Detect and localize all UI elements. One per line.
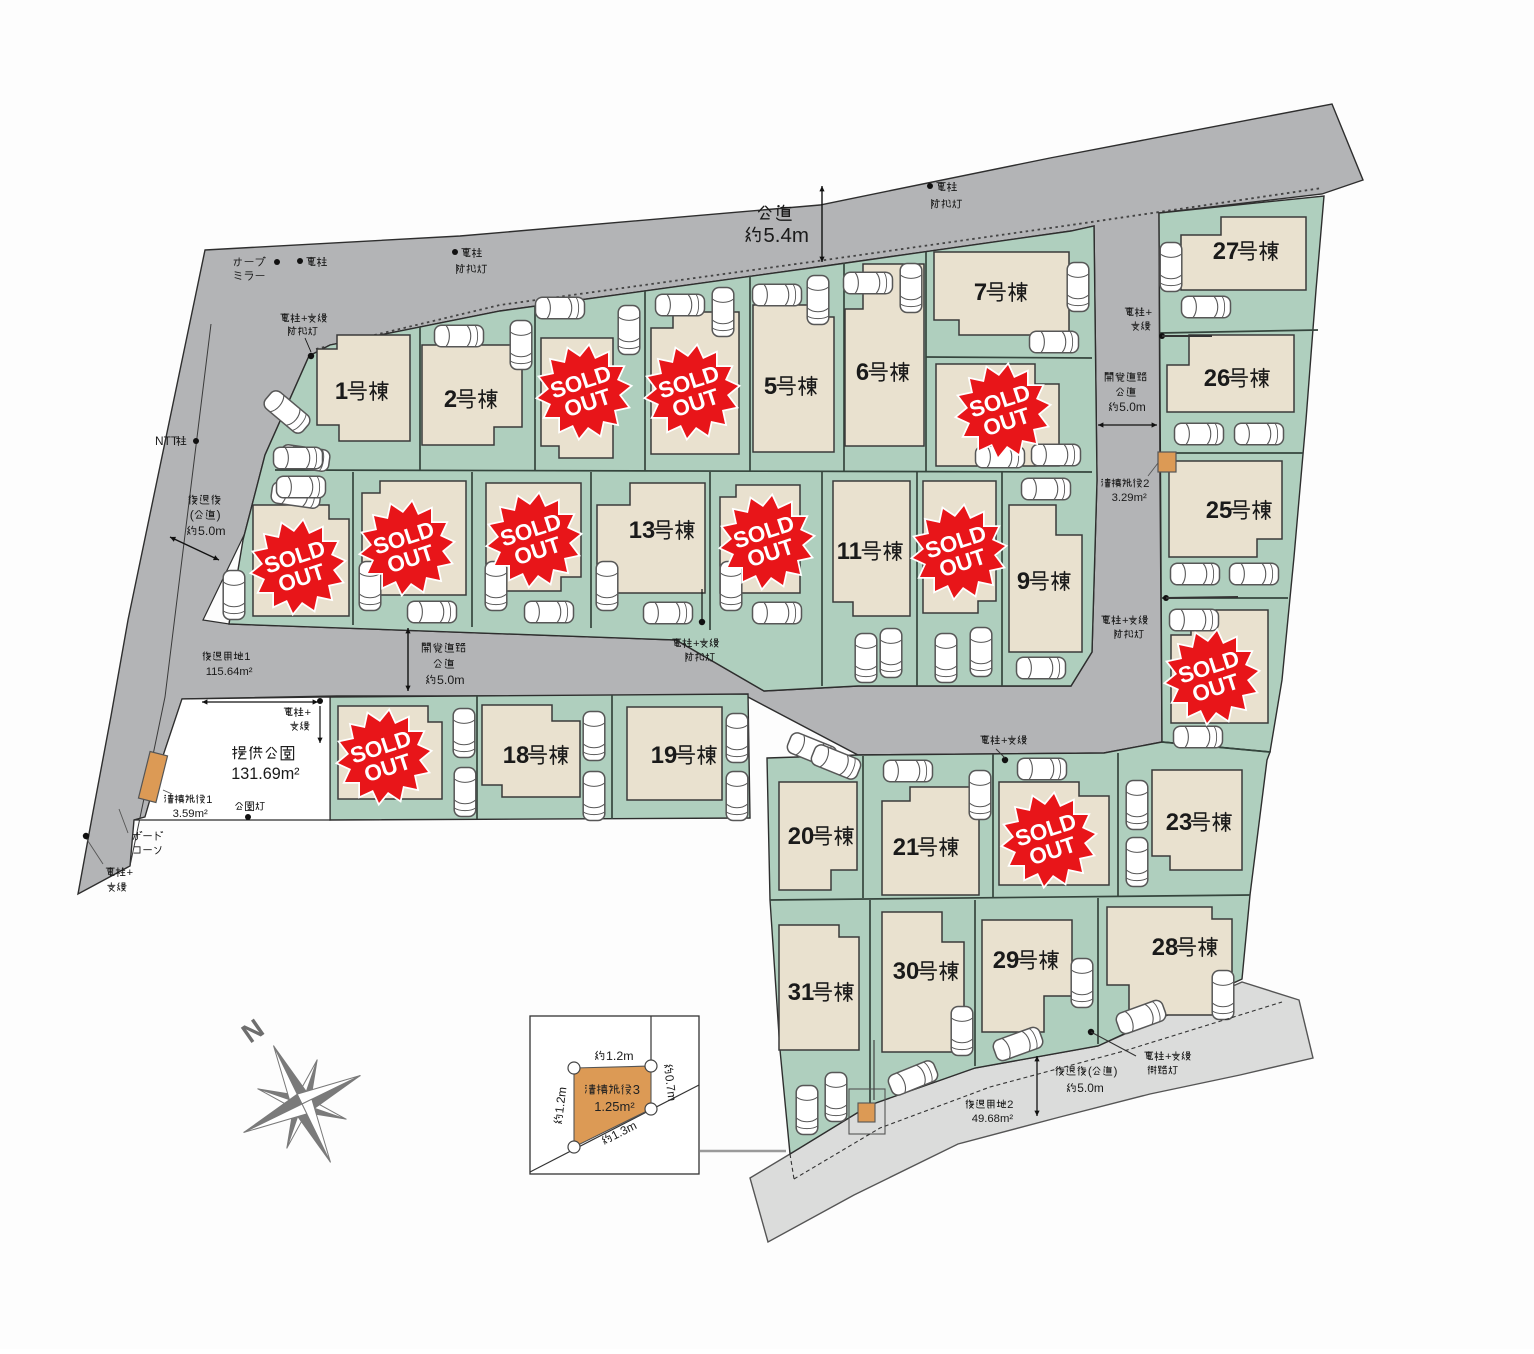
- svg-text:21: 21: [893, 834, 919, 861]
- svg-text:6: 6: [856, 359, 869, 386]
- svg-text:5.0m: 5.0m: [437, 673, 465, 687]
- svg-text:3.59m²: 3.59m²: [173, 808, 208, 820]
- svg-text:5.0m: 5.0m: [1077, 1081, 1104, 1095]
- svg-text:26: 26: [1204, 365, 1230, 392]
- svg-text:29: 29: [993, 947, 1019, 974]
- svg-text:5: 5: [764, 373, 777, 400]
- svg-text:1: 1: [335, 378, 348, 405]
- svg-text:11: 11: [837, 538, 862, 565]
- svg-text:18: 18: [503, 742, 529, 769]
- svg-text:+: +: [1165, 1051, 1172, 1063]
- svg-text:23: 23: [1166, 809, 1192, 836]
- svg-text:27: 27: [1213, 238, 1239, 265]
- svg-text:19: 19: [651, 742, 677, 769]
- svg-text:31: 31: [788, 979, 814, 1006]
- svg-text:NTT: NTT: [155, 434, 178, 448]
- svg-text:2: 2: [1143, 478, 1149, 490]
- svg-text:2: 2: [1007, 1099, 1013, 1111]
- svg-text:30: 30: [893, 958, 919, 985]
- svg-text:131.69m²: 131.69m²: [231, 765, 300, 783]
- svg-text:20: 20: [788, 823, 814, 850]
- svg-text:2: 2: [444, 386, 457, 413]
- svg-text:1.25m²: 1.25m²: [594, 1099, 635, 1114]
- svg-text:): ): [1114, 1064, 1118, 1078]
- svg-text:13: 13: [629, 517, 655, 544]
- svg-text:7: 7: [974, 279, 987, 306]
- svg-text:1: 1: [206, 794, 212, 806]
- svg-text:+: +: [301, 313, 308, 325]
- svg-text:3.29m²: 3.29m²: [1112, 492, 1147, 504]
- svg-text:25: 25: [1206, 497, 1232, 524]
- svg-text:+: +: [127, 867, 134, 879]
- svg-text:3: 3: [633, 1082, 640, 1097]
- svg-text:+: +: [1001, 735, 1008, 747]
- svg-text:28: 28: [1152, 934, 1178, 961]
- svg-text:+: +: [1146, 307, 1153, 319]
- svg-text:5.4m: 5.4m: [763, 224, 809, 247]
- svg-text:9: 9: [1017, 568, 1030, 595]
- svg-text:5.0m: 5.0m: [198, 524, 226, 538]
- svg-text:+: +: [1122, 615, 1129, 627]
- svg-text:1.2m: 1.2m: [606, 1049, 634, 1063]
- svg-text:+: +: [693, 638, 700, 650]
- svg-text:+: +: [305, 707, 312, 719]
- svg-text:1: 1: [244, 651, 250, 663]
- svg-text:(: (: [1088, 1064, 1092, 1078]
- svg-text:): ): [217, 508, 221, 522]
- svg-text:115.64m²: 115.64m²: [206, 666, 253, 678]
- svg-text:5.0m: 5.0m: [1119, 400, 1146, 414]
- svg-text:49.68m²: 49.68m²: [972, 1113, 1014, 1125]
